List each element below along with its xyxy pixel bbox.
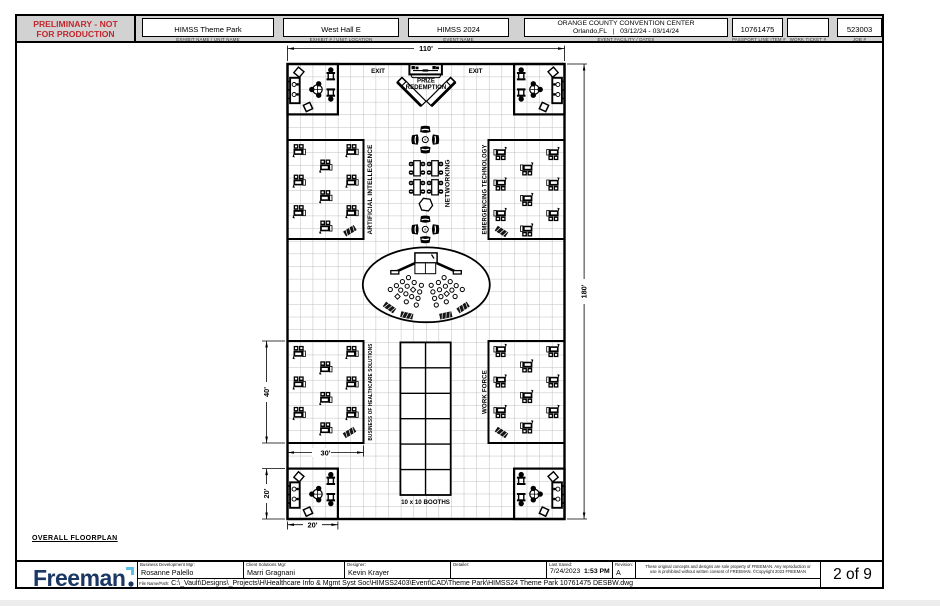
svg-text:20': 20' [308, 521, 318, 530]
svg-text:20': 20' [262, 488, 271, 498]
svg-text:BUSINESS OF HEALTHCARE SOLUTIO: BUSINESS OF HEALTHCARE SOLUTIONS [368, 344, 374, 441]
svg-text:EXIT: EXIT [469, 68, 483, 75]
svg-text:40': 40' [262, 387, 271, 397]
svg-text:WORK FORCE: WORK FORCE [481, 370, 488, 414]
svg-text:ARTIFICIAL INTELLEGENCE: ARTIFICIAL INTELLEGENCE [367, 145, 374, 235]
svg-text:EXIT: EXIT [371, 68, 385, 75]
svg-text:30': 30' [321, 448, 331, 457]
svg-text:NETWORKING: NETWORKING [444, 159, 451, 207]
svg-text:110': 110' [419, 44, 433, 53]
svg-text:REDEMPTION: REDEMPTION [406, 84, 447, 91]
svg-text:180': 180' [580, 284, 589, 298]
svg-text:10 x 10 BOOTHS: 10 x 10 BOOTHS [401, 499, 450, 506]
svg-text:EMERGENCING TECHNOLOGY: EMERGENCING TECHNOLOGY [481, 145, 488, 235]
